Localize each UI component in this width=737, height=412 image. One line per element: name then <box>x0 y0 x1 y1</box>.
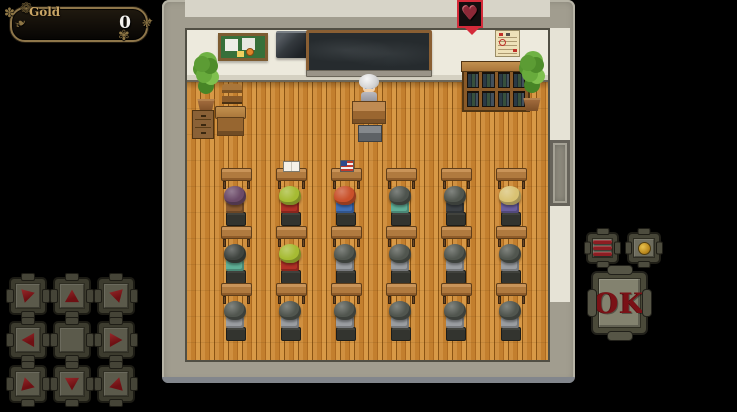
student-desk-unit <box>274 226 310 284</box>
dpad-left-button[interactable] <box>9 321 47 359</box>
menu-button[interactable] <box>586 232 619 264</box>
student-character <box>333 186 357 216</box>
hallway-wall-upper <box>550 28 570 140</box>
desk-top <box>441 226 472 239</box>
balloon-tail-icon <box>465 28 479 35</box>
school-desk <box>441 226 472 247</box>
school-desk <box>441 283 472 304</box>
desk-legs <box>498 239 525 247</box>
school-desk <box>386 283 417 304</box>
school-desk <box>221 226 252 247</box>
open-book-icon <box>283 161 300 172</box>
blackboard <box>306 30 432 74</box>
student-character <box>278 244 302 274</box>
student-desk-unit <box>494 283 530 341</box>
gold-window: ✽ ❁ ❧ Gold 0 ✾ ✦ <box>10 7 148 42</box>
student-desk-unit <box>384 283 420 341</box>
book-cubby <box>498 91 510 107</box>
student-desk-unit <box>384 226 420 284</box>
school-desk <box>331 283 362 304</box>
desk-legs <box>278 239 305 247</box>
desk-top <box>221 283 252 296</box>
desk-legs <box>443 296 470 304</box>
ok-label: OK <box>594 287 645 320</box>
door-recess <box>550 140 570 206</box>
student-character <box>278 186 302 216</box>
student-character <box>498 244 522 274</box>
student-character <box>443 244 467 274</box>
student-desk-unit <box>494 168 530 226</box>
dpad-right-button[interactable] <box>97 321 135 359</box>
calendar <box>495 30 520 57</box>
student-desk-unit <box>384 168 420 226</box>
corridor-wall-top <box>185 0 550 17</box>
chalk-icon <box>314 73 318 76</box>
student-character <box>388 301 412 331</box>
student-desk-unit <box>329 168 365 226</box>
desk-legs <box>498 296 525 304</box>
desk-top <box>221 168 252 181</box>
student-desk-unit <box>274 283 310 341</box>
desk-legs <box>223 239 250 247</box>
flag-icon <box>340 160 354 172</box>
button-face <box>633 238 655 258</box>
dpad-down-left-button[interactable] <box>9 365 47 403</box>
desk-legs <box>388 296 415 304</box>
side-cabinet <box>192 110 214 139</box>
desk-top <box>331 283 362 296</box>
student-desk-unit <box>329 283 365 341</box>
student-character <box>333 301 357 331</box>
plant-leaves <box>194 56 210 72</box>
button-face <box>59 327 85 353</box>
dpad-up-left-button[interactable] <box>9 277 47 315</box>
desk-top <box>496 226 527 239</box>
potted-plant-left <box>192 56 220 112</box>
dpad-down-button[interactable] <box>53 365 91 403</box>
calendar-marks <box>499 33 503 36</box>
desk-top <box>496 283 527 296</box>
desk-legs <box>223 296 250 304</box>
school-desk <box>276 283 307 304</box>
student-desk-unit <box>439 168 475 226</box>
desk-top <box>276 226 307 239</box>
hallway-wall-lower <box>550 206 570 302</box>
dpad-up-button[interactable] <box>53 277 91 315</box>
school-desk <box>221 168 252 189</box>
dpad-down-right-button[interactable] <box>97 365 135 403</box>
desk-top <box>386 168 417 181</box>
student-desk-unit <box>439 283 475 341</box>
desk-legs <box>498 181 525 189</box>
school-desk <box>331 168 362 189</box>
dpad <box>9 277 135 403</box>
student-character <box>223 244 247 274</box>
book-cubby <box>467 72 479 88</box>
student-character <box>443 301 467 331</box>
student-desk-unit <box>219 226 255 284</box>
school-desk <box>331 226 362 247</box>
page-button[interactable] <box>627 232 661 264</box>
school-desk <box>221 283 252 304</box>
desk-top <box>441 168 472 181</box>
sparkle-ornament-icon: ✦ <box>146 17 154 27</box>
button-face <box>592 238 613 258</box>
school-desk <box>386 168 417 189</box>
leaf-ornament-icon: ❧ <box>12 14 30 34</box>
tv-monitor <box>276 31 308 58</box>
desk-legs <box>278 181 305 189</box>
student-character <box>278 301 302 331</box>
school-desk <box>496 226 527 247</box>
teacher-podium <box>352 101 386 124</box>
menu-bars-icon <box>593 246 612 250</box>
ok-button[interactable]: OK <box>591 271 648 335</box>
desk-top <box>276 283 307 296</box>
gold-label: Gold <box>29 5 60 19</box>
dpad-up-right-button[interactable] <box>97 277 135 315</box>
desk-top <box>331 226 362 239</box>
desk-top <box>386 283 417 296</box>
potted-plant-right <box>518 55 546 111</box>
desk-legs <box>388 181 415 189</box>
teacher-stool <box>358 125 382 142</box>
book-cubby <box>467 91 479 107</box>
menu-bars-icon <box>593 240 612 244</box>
student-character <box>443 186 467 216</box>
desk-top <box>496 168 527 181</box>
desk-top <box>221 226 252 239</box>
teacher-hair <box>359 74 379 89</box>
bookshelf-cubbies <box>467 72 525 107</box>
student-character <box>388 186 412 216</box>
desk-legs <box>333 296 360 304</box>
menu-bars-icon <box>593 252 612 256</box>
school-desk <box>441 168 472 189</box>
gold-value: 0 <box>119 13 131 33</box>
student-desk-unit <box>494 226 530 284</box>
school-desk <box>496 168 527 189</box>
dot-icon <box>638 242 651 255</box>
book-cubby <box>482 91 494 107</box>
button-face: OK <box>598 278 641 328</box>
student-character <box>223 186 247 216</box>
desk-legs <box>443 239 470 247</box>
student-desk-unit <box>219 168 255 226</box>
school-desk <box>276 168 307 189</box>
school-desk <box>276 226 307 247</box>
desk-legs <box>333 181 360 189</box>
student-desk-unit <box>219 283 255 341</box>
side-desk <box>215 106 246 136</box>
plant-leaves <box>520 55 536 71</box>
student-desk-unit <box>274 168 310 226</box>
student-character <box>333 244 357 274</box>
desk-legs <box>278 296 305 304</box>
student-desk-unit <box>329 226 365 284</box>
desk-top <box>441 283 472 296</box>
desk-legs <box>333 239 360 247</box>
school-desk <box>386 226 417 247</box>
flower-ornament-icon: ✽ <box>4 6 15 21</box>
book-cubby <box>482 72 494 88</box>
desk-top <box>386 226 417 239</box>
student-character <box>223 301 247 331</box>
desk-legs <box>443 181 470 189</box>
dpad-center-button[interactable] <box>53 321 91 359</box>
bulletin-board <box>218 33 268 61</box>
student-character <box>498 186 522 216</box>
plant-pot <box>523 98 541 111</box>
game-viewport[interactable]: ♥ <box>158 0 578 385</box>
room-wall-bottom-edge <box>162 377 575 383</box>
heart-icon: ♥ <box>461 5 478 24</box>
desk-legs <box>223 181 250 189</box>
student-character <box>388 244 412 274</box>
book-cubby <box>498 72 510 88</box>
event-heart-indicator: ♥ <box>457 0 483 28</box>
student-desk-unit <box>439 226 475 284</box>
school-desk <box>496 283 527 304</box>
student-character <box>498 301 522 331</box>
desk-legs <box>388 239 415 247</box>
